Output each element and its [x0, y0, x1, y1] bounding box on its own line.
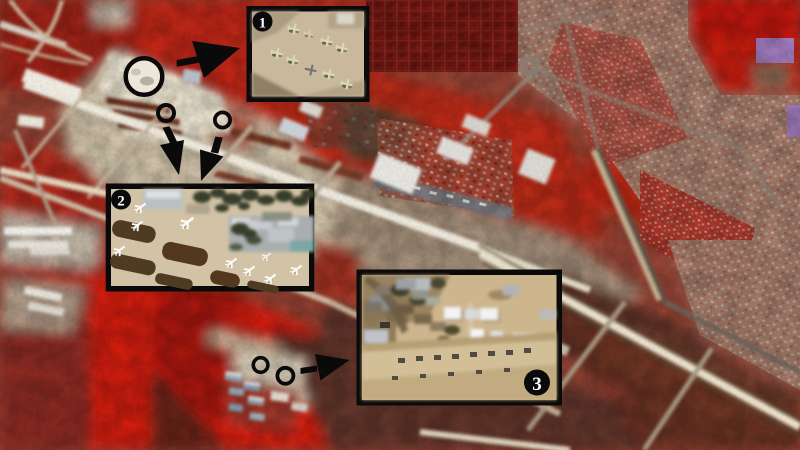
svg-text:3: 3 [532, 374, 542, 395]
svg-text:2: 2 [117, 194, 125, 210]
svg-text:1: 1 [259, 16, 267, 32]
